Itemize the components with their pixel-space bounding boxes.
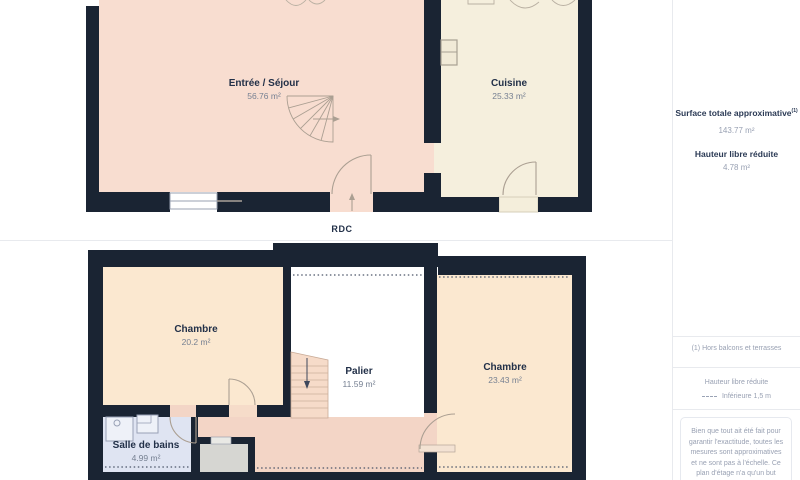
floor-divider — [0, 240, 672, 241]
staircase-straight — [291, 352, 328, 418]
legend-title: Hauteur libre réduite — [673, 379, 800, 386]
floor-caption-rdc: RDC — [331, 224, 352, 234]
disclaimer-card: Bien que tout ait été fait pour garantir… — [680, 417, 792, 480]
floorplan-page: Entrée / Séjour 56.76 m² Cuisine 25.33 m… — [0, 0, 800, 480]
bathroom-doorway — [170, 405, 196, 417]
dashed-line-icon — [702, 396, 717, 397]
washbasin — [137, 415, 158, 433]
rdc-floorplan — [86, 0, 592, 212]
surface-total-value: 143.77 m² — [673, 126, 800, 135]
cuisine-sink — [441, 40, 457, 65]
reduced-height-value: 4.78 m² — [673, 163, 800, 172]
label-palier: Palier 11.59 m² — [343, 366, 376, 390]
sidebar-divider — [673, 367, 800, 368]
legend-item: Inférieure 1,5 m — [722, 393, 771, 400]
info-sidebar: Surface totale approximative(1) 143.77 m… — [672, 0, 800, 480]
label-chambre-left: Chambre 20.2 m² — [174, 324, 217, 348]
reduced-height-title: Hauteur libre réduite — [673, 149, 800, 159]
chambre-left-doorway — [229, 405, 257, 417]
label-salle-de-bains: Salle de bains 4.99 m² — [113, 440, 180, 464]
disclaimer-text: Bien que tout ait été fait pour garantir… — [688, 427, 784, 480]
legend-row: Inférieure 1,5 m — [673, 393, 800, 400]
footnote: (1) Hors balcons et terrasses — [673, 345, 800, 352]
closet-door — [211, 437, 231, 444]
label-entree-sejour: Entrée / Séjour 56.76 m² — [229, 78, 300, 102]
shower — [106, 417, 133, 441]
floorplan-canvas: Entrée / Séjour 56.76 m² Cuisine 25.33 m… — [0, 0, 672, 480]
sejour-cuisine-doorway — [424, 143, 434, 173]
label-chambre-right: Chambre 23.43 m² — [483, 362, 526, 386]
label-cuisine: Cuisine 25.33 m² — [491, 78, 527, 102]
sidebar-divider — [673, 336, 800, 337]
sidebar-divider — [673, 409, 800, 410]
surface-total-title: Surface totale approximative(1) — [673, 108, 800, 118]
porch-step — [499, 197, 538, 212]
chambre-right-doorway — [424, 413, 437, 450]
